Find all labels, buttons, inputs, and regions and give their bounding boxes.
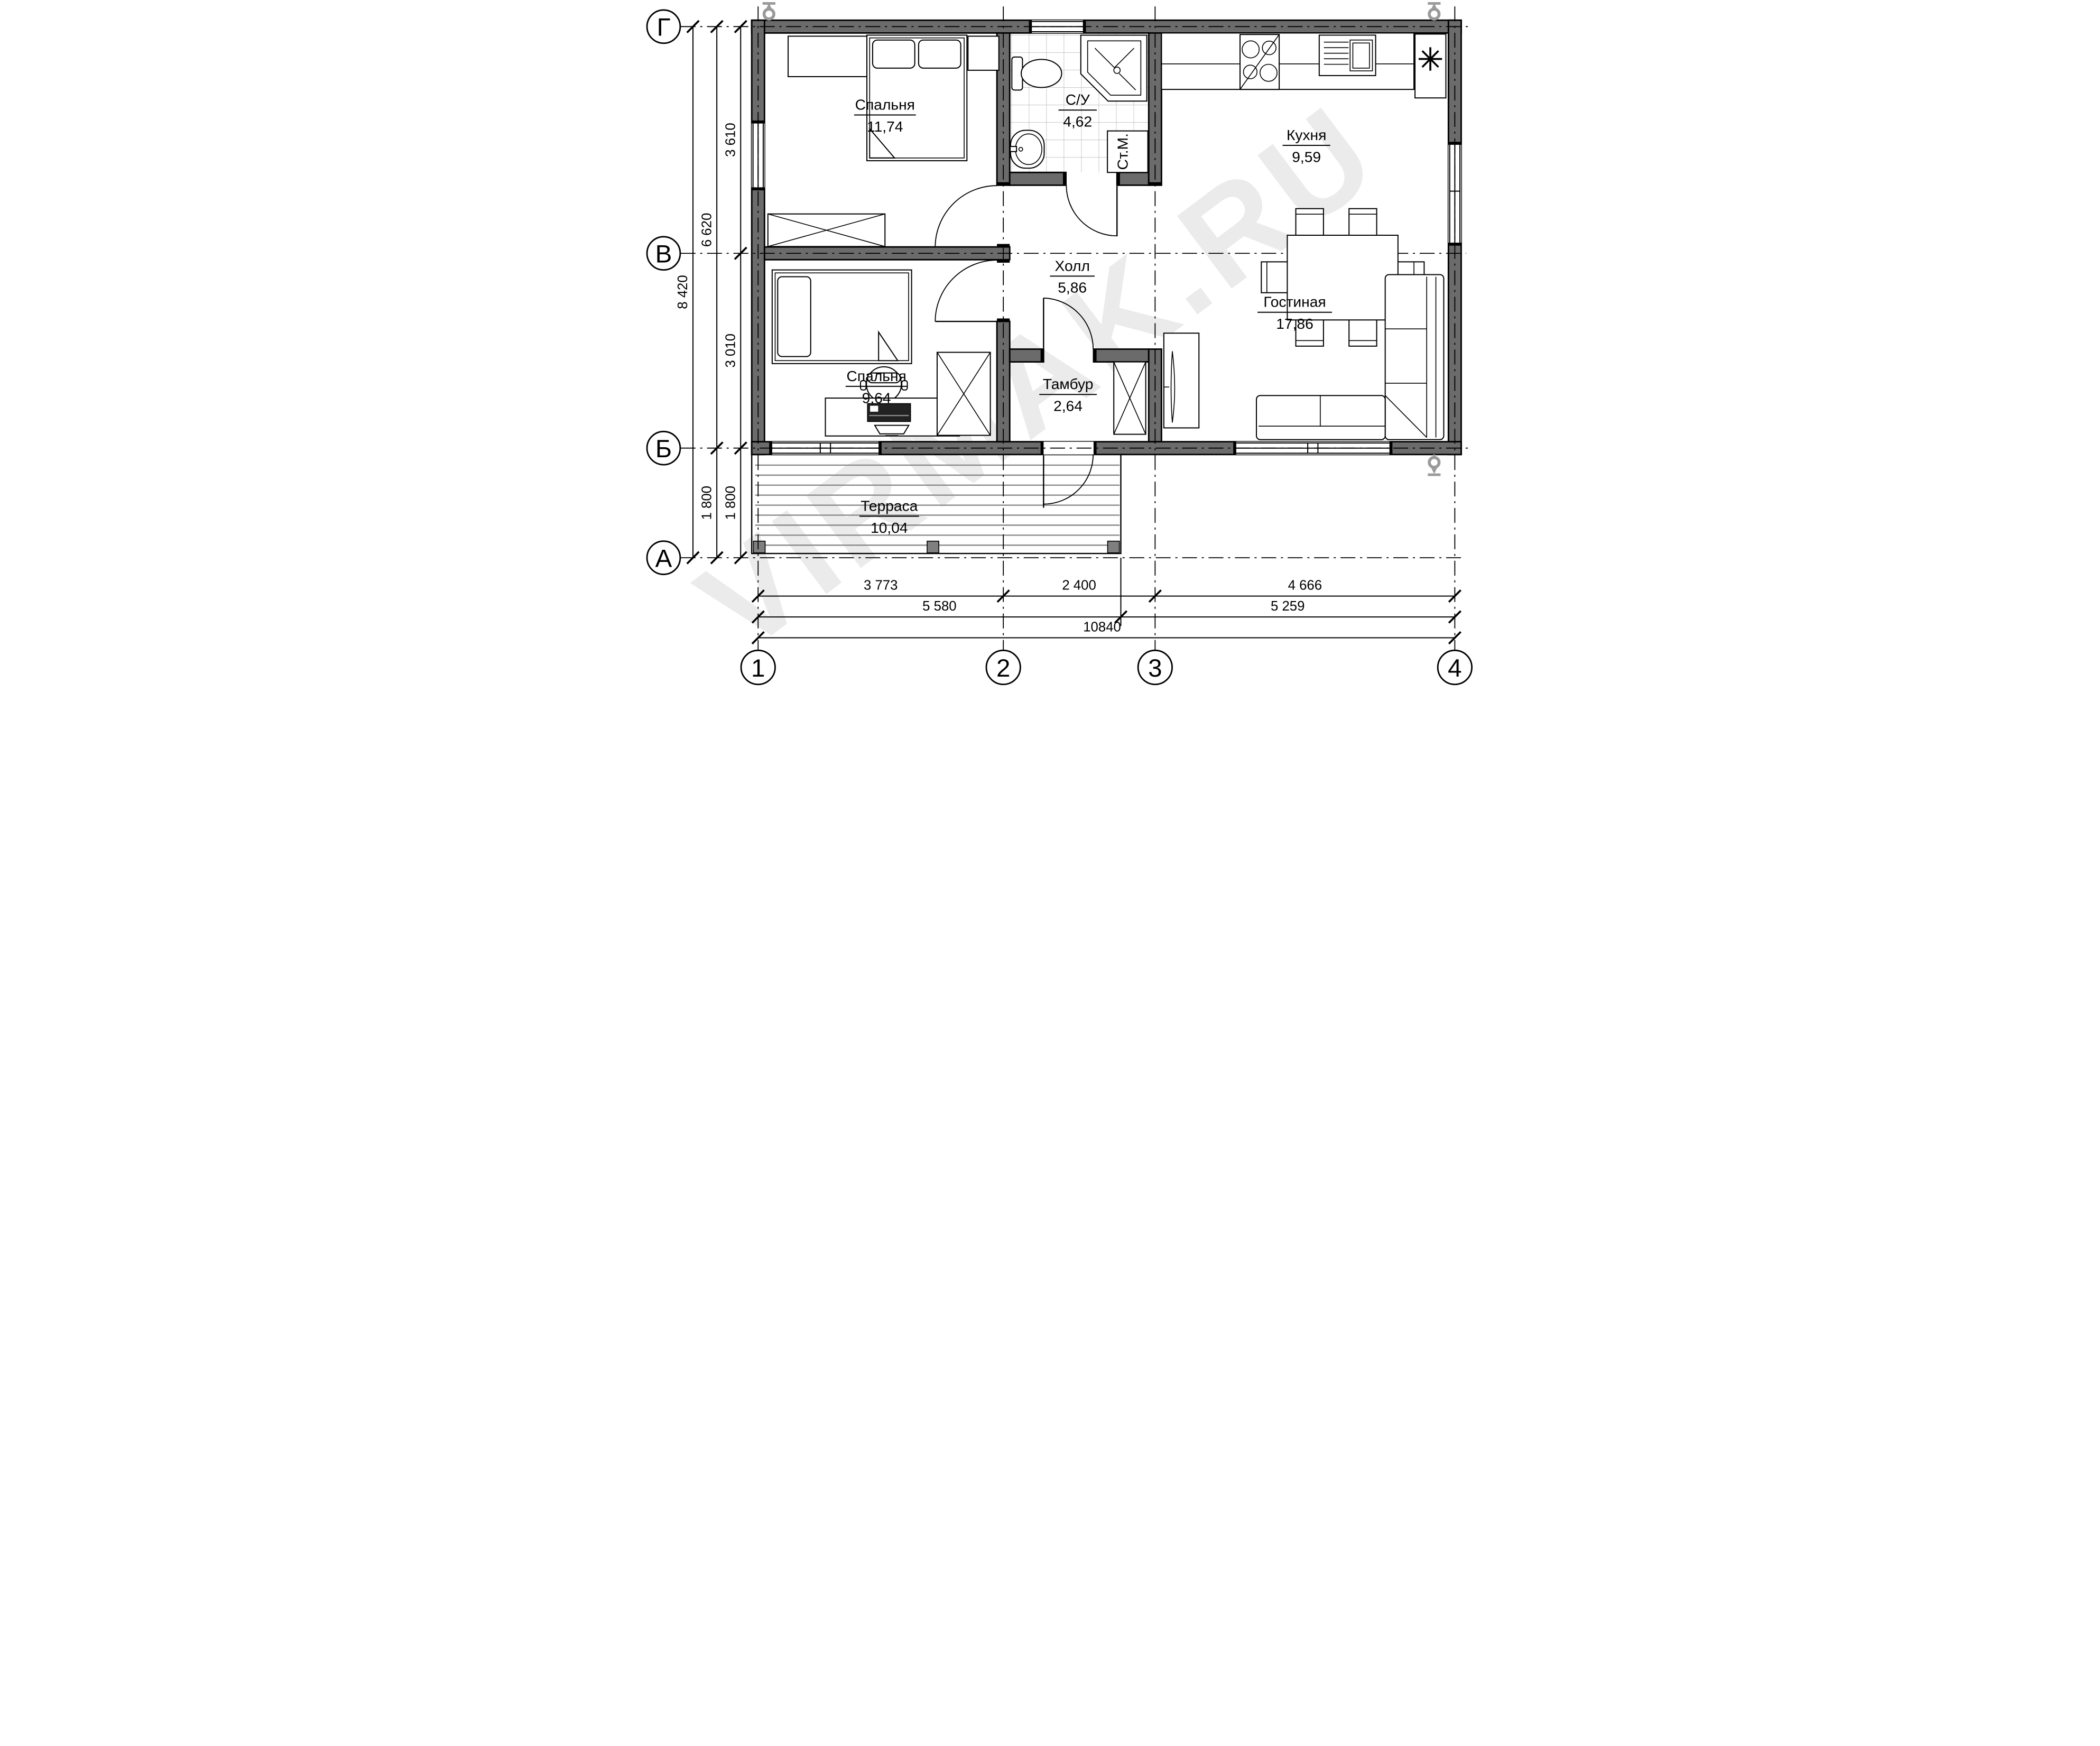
axis-label: 3: [1148, 654, 1162, 682]
dim-3610: 3 610: [723, 123, 738, 156]
dim-1800-middle: 1 800: [699, 486, 714, 520]
axis-bubble-G: Г: [647, 10, 680, 43]
fridge: [1415, 34, 1446, 98]
wardrobe-vestibule: [1114, 362, 1145, 435]
wall-bathroom-right: [1149, 33, 1161, 185]
room-name: Спальня: [846, 367, 906, 384]
dim-6620: 6 620: [699, 213, 714, 247]
room-area: 4,62: [1063, 113, 1092, 130]
tv-unit: [1163, 333, 1198, 428]
room-area: 9,64: [862, 389, 891, 406]
dim-8420: 8 420: [676, 275, 690, 309]
axis-label: А: [655, 544, 672, 572]
room-name: Терраса: [861, 497, 918, 514]
axis-bubble-B: Б: [647, 431, 680, 465]
axis-bubble-3: 3: [1138, 650, 1172, 684]
room-area: 17,86: [1276, 315, 1313, 332]
dresser: [788, 36, 867, 77]
dining-chair: [1261, 262, 1288, 292]
room-area: 5,86: [1058, 279, 1087, 296]
dim-5580: 5 580: [922, 599, 956, 614]
axis-label: В: [655, 241, 672, 269]
axis-label: 2: [996, 654, 1010, 682]
room-area: 2,64: [1053, 398, 1083, 414]
room-area: 10,04: [871, 519, 908, 536]
wardrobe-bedroom1: [767, 214, 884, 247]
dim-5259: 5 259: [1270, 599, 1304, 614]
room-name: Тамбур: [1042, 375, 1093, 392]
wall-vestibule-stub-right: [1093, 349, 1148, 362]
wardrobe-bedroom2: [937, 352, 990, 435]
dim-10840: 10840: [1083, 620, 1121, 634]
axis-bubble-A: А: [647, 541, 680, 575]
wall-bathroom-bottom-right: [1117, 172, 1149, 185]
dining-chair: [1349, 319, 1376, 346]
axis-bubble-4: 4: [1438, 650, 1472, 684]
room-area: 9,59: [1292, 148, 1321, 165]
axis-label: Б: [655, 435, 671, 463]
floor-plan-page: VIRMAK.RU: [627, 0, 1473, 703]
washing-machine: Ст.М.: [1107, 131, 1148, 173]
axis-label: 1: [751, 654, 765, 682]
nightstand: [968, 36, 998, 70]
stove: [1240, 34, 1279, 89]
terrace-post: [753, 541, 765, 553]
single-bed: [772, 270, 911, 364]
terrace-post: [927, 541, 939, 553]
room-name: Холл: [1054, 257, 1089, 274]
axis-label: Г: [656, 14, 670, 42]
dim-3010: 3 010: [723, 334, 738, 367]
axis-bubble-1: 1: [741, 650, 775, 684]
axis-label: 4: [1448, 654, 1461, 682]
room-name: Гостиная: [1263, 293, 1326, 310]
vestibule-furniture: [1114, 362, 1145, 435]
kitchen-sink: [1319, 35, 1375, 76]
keyboard-key-block: [870, 406, 878, 412]
floor-plan-drawing: VIRMAK.RU: [627, 0, 1473, 703]
window-bedroom1: [752, 121, 764, 190]
room-name: Спальня: [855, 96, 914, 113]
dim-2400: 2 400: [1062, 578, 1096, 593]
dim-1800-inner: 1 800: [723, 486, 738, 520]
dining-chair: [1349, 209, 1376, 236]
axis-bubble-V: В: [647, 237, 680, 270]
axis-bubble-2: 2: [986, 650, 1020, 684]
dining-chair: [1296, 209, 1323, 236]
wall-bathroom-bottom-left: [1010, 172, 1066, 185]
room-name: Кухня: [1286, 126, 1326, 143]
washing-machine-label: Ст.М.: [1114, 133, 1131, 170]
dim-3773: 3 773: [863, 578, 897, 593]
sink: [1010, 130, 1044, 168]
dim-4666: 4 666: [1288, 578, 1321, 593]
wall-vestibule-stub-left: [1010, 349, 1043, 362]
terrace-post: [1107, 541, 1119, 553]
monitor: [874, 426, 908, 434]
room-area: 11,74: [867, 118, 903, 135]
room-name: С/У: [1065, 91, 1090, 108]
